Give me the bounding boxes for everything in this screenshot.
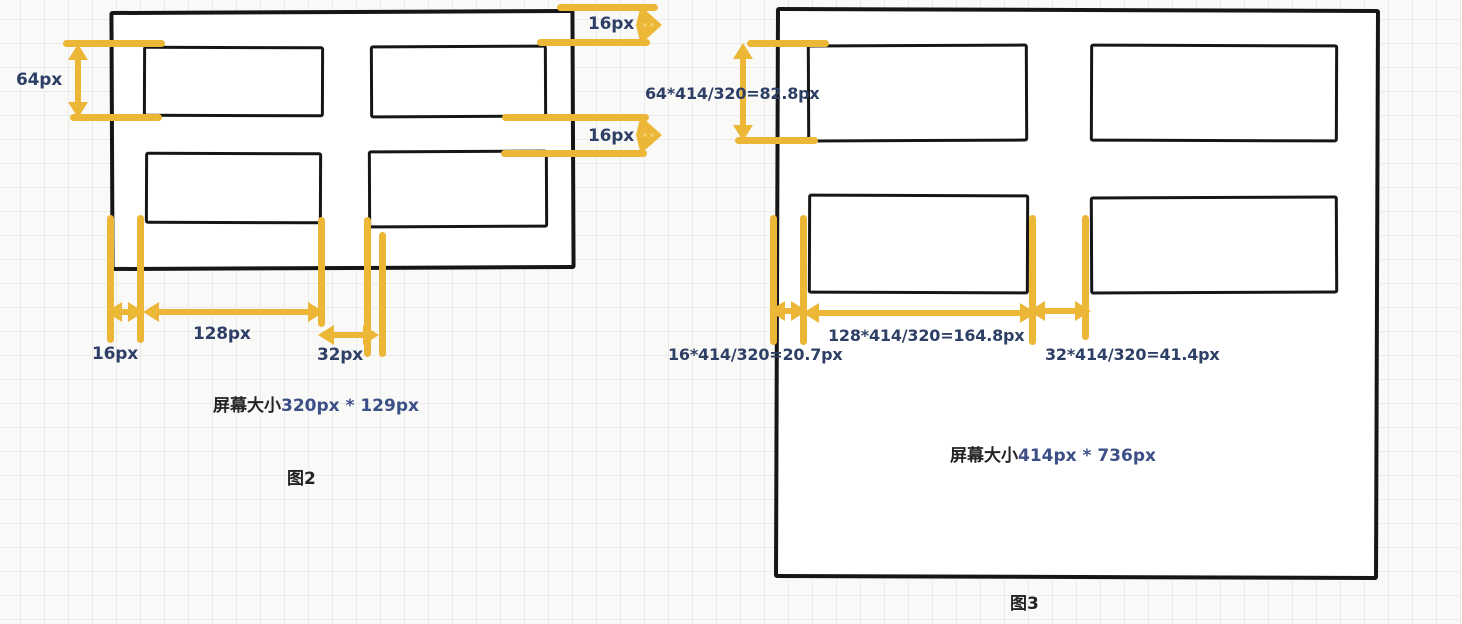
fig3-column-gap-arrow bbox=[1032, 308, 1088, 314]
fig3-content-width-arrow bbox=[806, 310, 1033, 316]
fig3-guide-screen-left bbox=[770, 215, 777, 345]
fig3-content-width-label: 128*414/320=164.8px bbox=[828, 326, 1024, 345]
fig3-card-top-right bbox=[1090, 44, 1338, 143]
fig3-left-margin-arrow bbox=[772, 308, 804, 314]
fig3-caption: 屏幕大小414px * 736px bbox=[950, 441, 1156, 466]
fig3-guide-card-left bbox=[800, 215, 807, 345]
fig3-card-bottom-left bbox=[808, 194, 1029, 295]
fig3-guide-card-right bbox=[1029, 215, 1036, 345]
fig3-card-bottom-right bbox=[1090, 195, 1338, 294]
fig3-guide-gap-right bbox=[1082, 215, 1089, 340]
fig3-column-gap-label: 32*414/320=41.4px bbox=[1045, 345, 1220, 364]
fig3-left-margin-label: 16*414/320=20.7px bbox=[668, 345, 843, 364]
fig3-header-height-line-upper bbox=[747, 40, 829, 47]
fig3-card-top-left bbox=[807, 44, 1028, 143]
fig3-name-label: 图3 bbox=[1010, 589, 1039, 614]
figure3-group: 64*414/320=82.8px 16*414/320=20.7px 128*… bbox=[0, 0, 1462, 624]
fig3-caption-prefix: 屏幕大小 bbox=[950, 446, 1018, 466]
whiteboard-canvas: 16px 16px 64px 16px 128px 32px 屏幕大小320px… bbox=[0, 0, 1462, 624]
fig3-header-height-label: 64*414/320=82.8px bbox=[645, 84, 820, 103]
fig3-caption-size: 414px * 736px bbox=[1018, 446, 1156, 466]
